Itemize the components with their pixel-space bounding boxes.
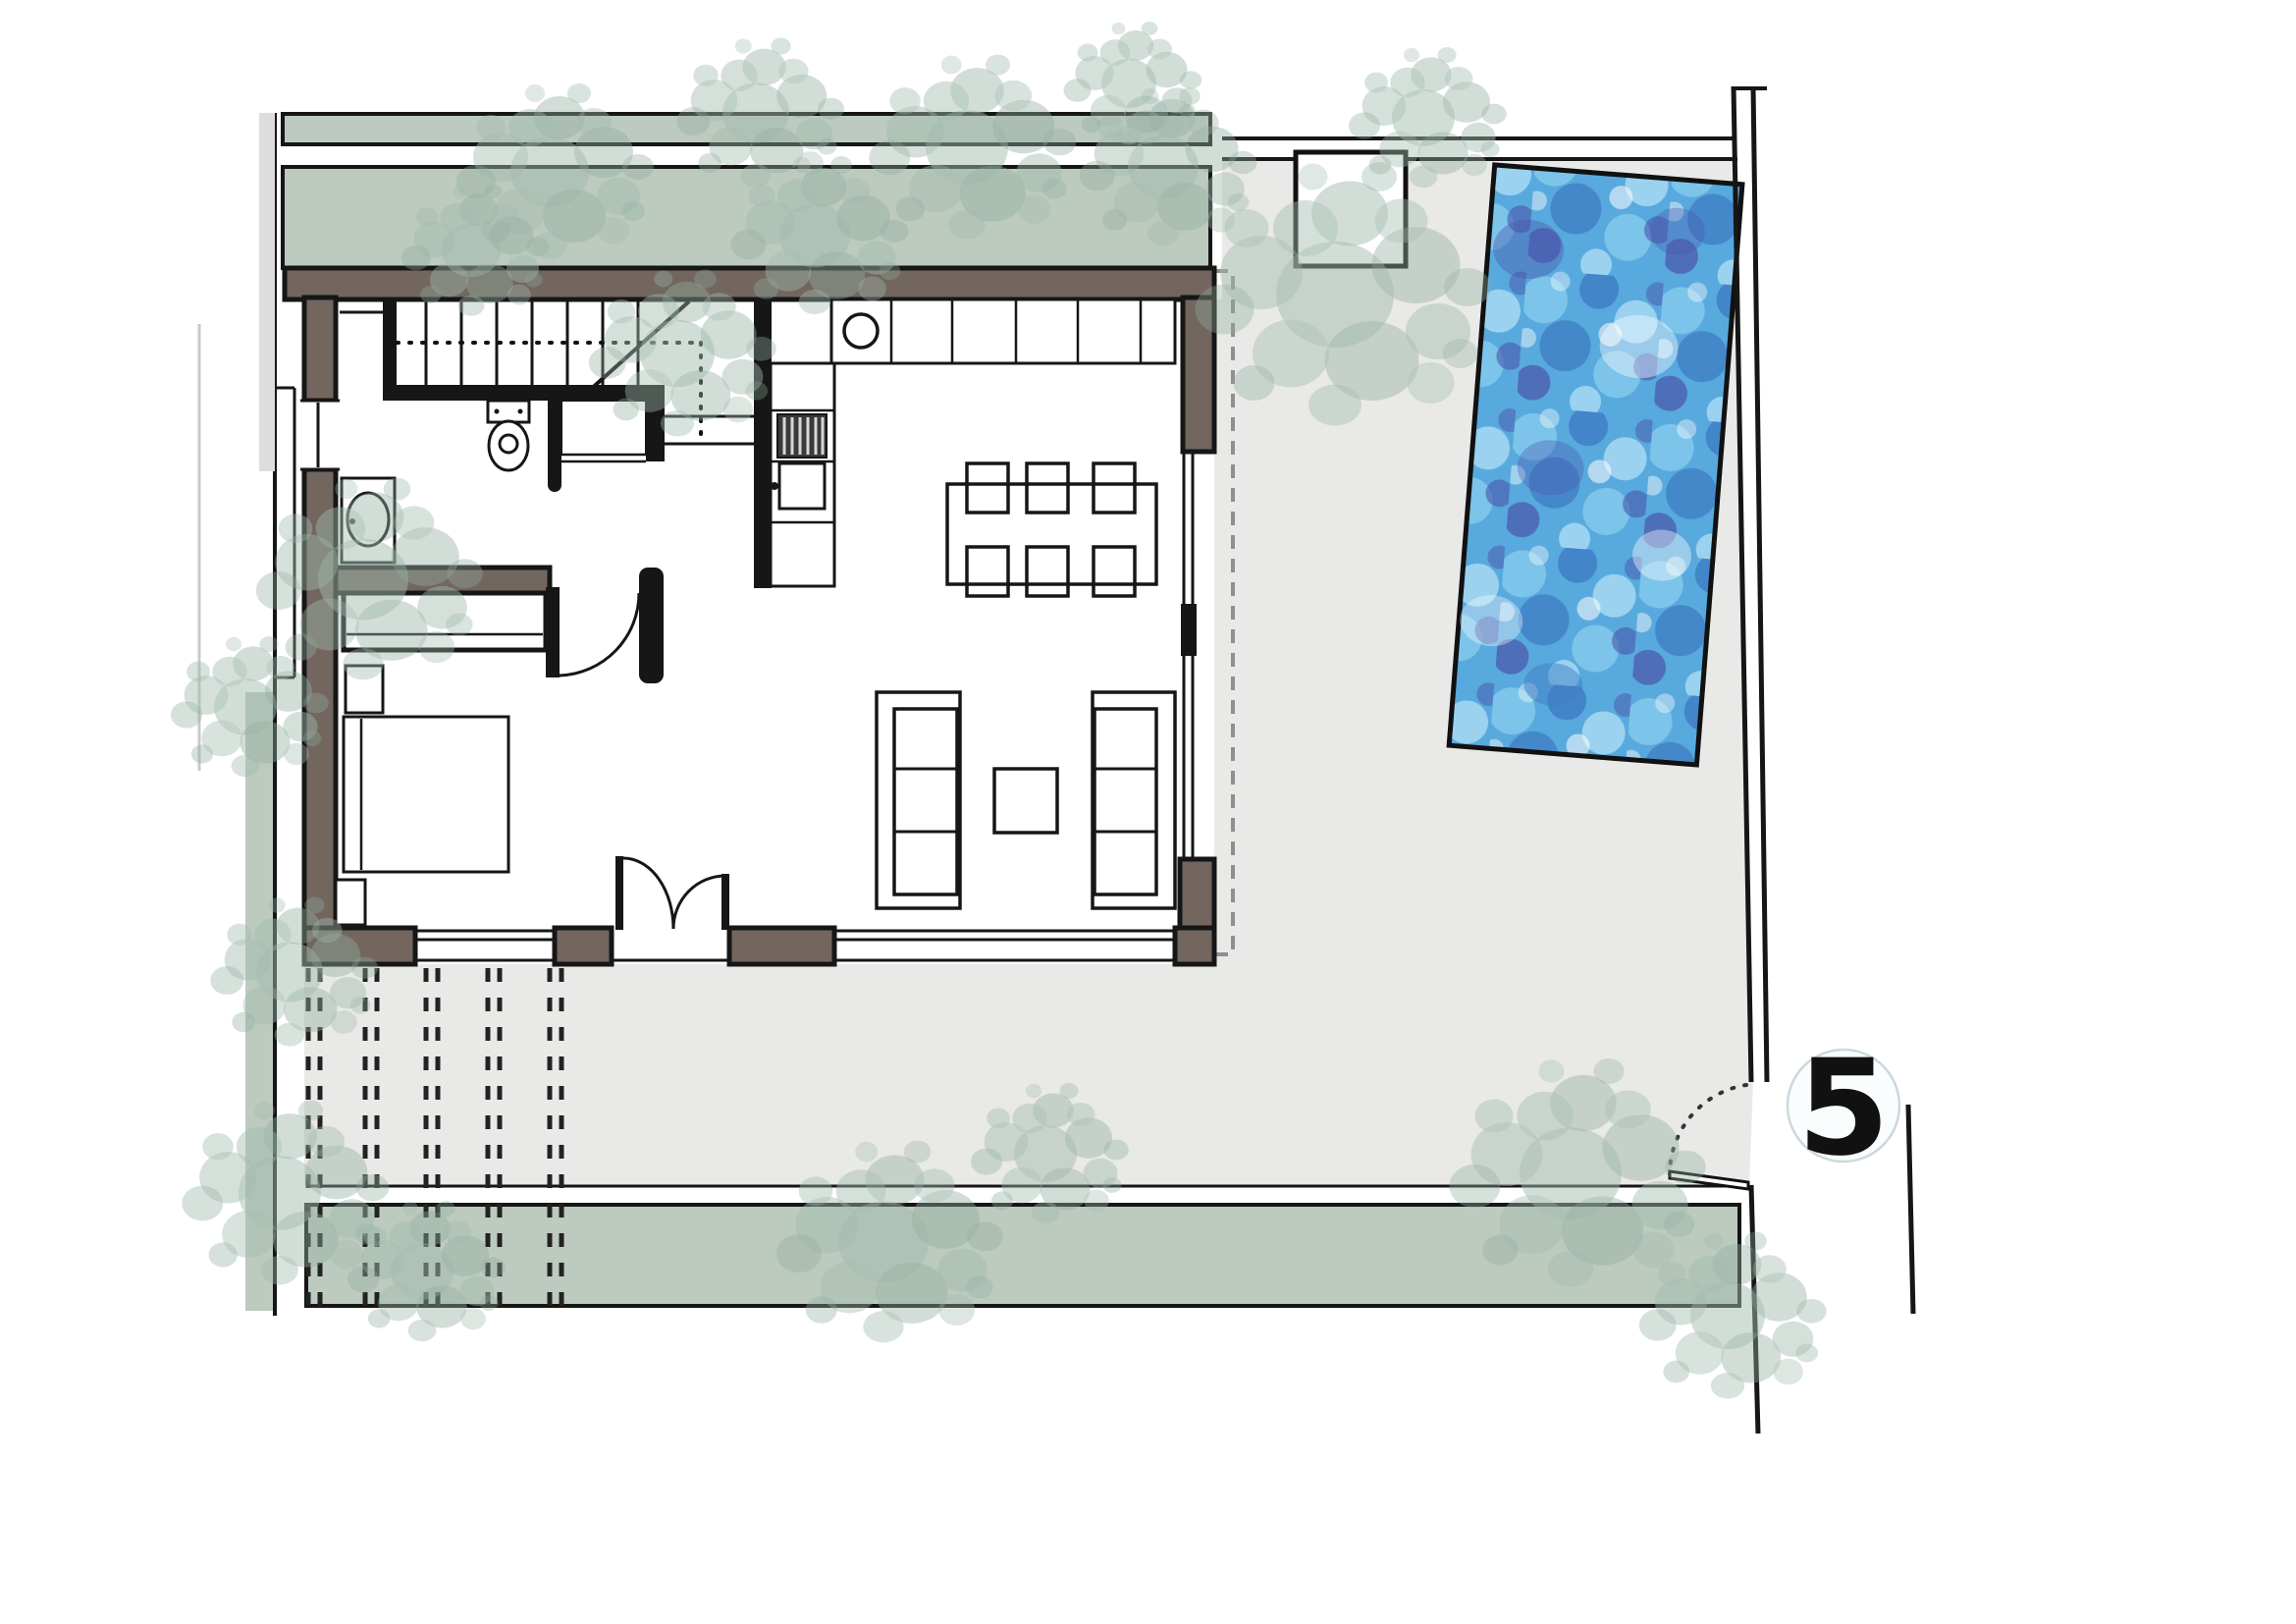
window-right-dining [1181, 452, 1214, 604]
floor-plan-drawing: 5 [0, 0, 2296, 1624]
tree-foliage [869, 55, 1076, 240]
wall-left-upper [304, 298, 336, 401]
dining-table [947, 484, 1156, 584]
left-boundary-gray-strip [259, 113, 275, 471]
tree-foliage [1064, 22, 1202, 144]
bathroom-jamb [548, 396, 561, 492]
coffee-table [994, 769, 1057, 833]
wall-bottom-corner [1175, 928, 1214, 964]
stair-side-wall [383, 385, 665, 401]
bedroom-door [546, 587, 639, 677]
kitchen-counter-top [831, 299, 1175, 363]
boundary-stub-right [1908, 1105, 1913, 1314]
unit-number-badge: 5 [1788, 1031, 1899, 1185]
kitchen [771, 299, 1175, 586]
wall-right-mullion [1181, 604, 1197, 656]
sofa-right [1093, 692, 1175, 908]
entry-double-door [615, 856, 729, 930]
bed [344, 717, 508, 872]
cooktop-icon [777, 414, 827, 458]
window-bottom-bedroom [415, 931, 555, 960]
dining-area [947, 463, 1156, 596]
floor-plan-page: 5 [0, 0, 2296, 1624]
oven-icon [779, 463, 825, 509]
window-left-bathroom [300, 401, 340, 469]
tree-foliage [1349, 47, 1507, 188]
hall-jamb [639, 568, 664, 683]
kitchen-counter-side [771, 363, 834, 586]
window-bottom-living [834, 931, 1175, 960]
unit-number: 5 [1797, 1031, 1890, 1185]
swimming-pool [1449, 165, 1742, 765]
toilet-icon [488, 401, 529, 470]
sofa-left [877, 692, 960, 908]
window-right-living [1181, 656, 1214, 859]
wall-bottom-pier [555, 928, 612, 964]
stair-left-post [383, 299, 397, 401]
oven-handle [771, 482, 778, 490]
living-room [877, 692, 1175, 908]
bedroom-stool [336, 880, 365, 925]
tree-foliage [676, 37, 844, 187]
tree-foliage [256, 478, 483, 680]
wall-bottom-2 [729, 928, 834, 964]
